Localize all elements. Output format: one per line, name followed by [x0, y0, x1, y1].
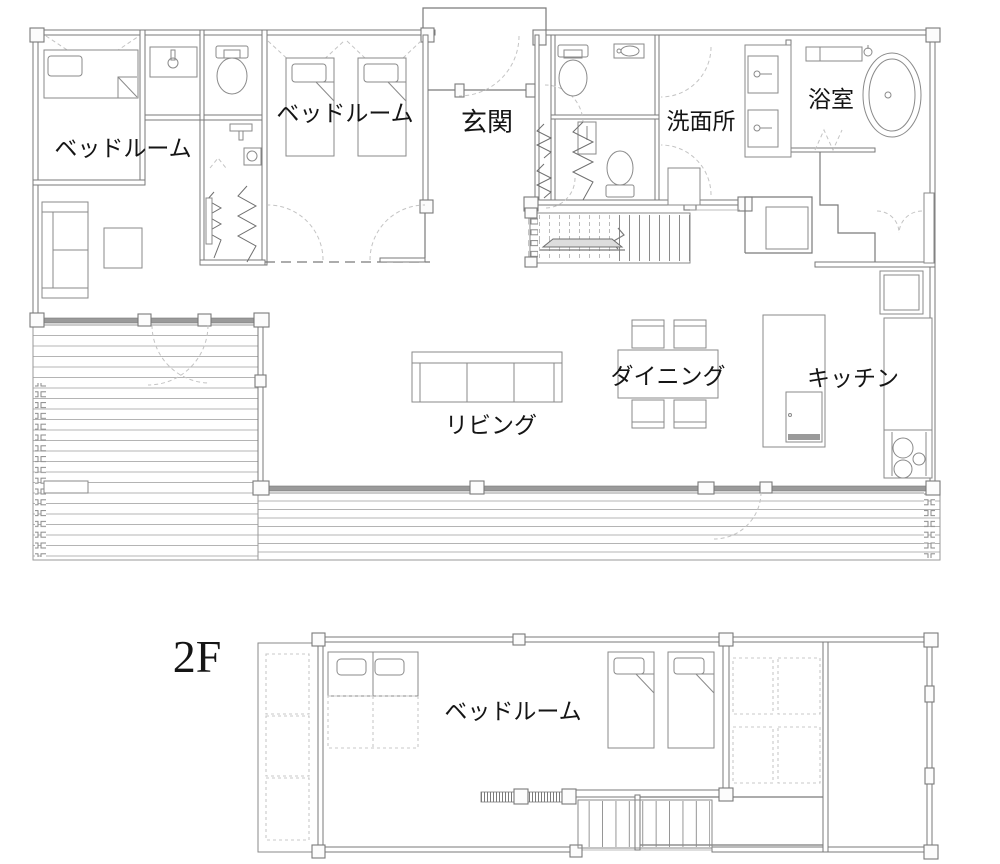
stair-landing: [543, 239, 622, 247]
room-label-living: リビング: [445, 413, 537, 438]
room-label-entrance: 玄関: [461, 108, 513, 137]
deck-post-column-right: [924, 488, 935, 558]
floor-2f-plan: 2F ベッドルーム: [173, 631, 938, 859]
kitchen-counter-icon: [884, 318, 932, 478]
stove-icon: [884, 430, 932, 478]
stair-railing: [481, 792, 514, 802]
sofa-icon: [412, 352, 562, 402]
storage-room: [745, 197, 812, 253]
stairs-2f-icon: [481, 789, 712, 848]
floor-label-2f: 2F: [173, 631, 222, 682]
stair-railing: [528, 792, 562, 802]
entrance-door-swing: [459, 36, 519, 96]
toilet-icon: [558, 45, 588, 96]
chair-icon: [674, 400, 706, 428]
toilet-icon: [578, 122, 634, 197]
deck-post-column-left: [35, 383, 46, 557]
bed-icon: [44, 50, 138, 98]
bed-icon: [668, 652, 714, 748]
chair-icon: [632, 320, 664, 348]
lounge-sofa-icon: [42, 202, 142, 298]
double-door-swing: [899, 211, 922, 233]
double-bed-icon: [328, 652, 418, 748]
refrigerator-icon: [880, 271, 923, 314]
room-label-bathroom: 浴室: [808, 87, 854, 112]
closet-door-swing: [370, 205, 425, 260]
floor-1f-plan: ベッドルーム ベッドルーム 玄関 洗面所 浴室 ダイニング リビング キッチン: [30, 8, 940, 560]
laundry-cabinet: [668, 168, 700, 205]
balcony-2f: [258, 643, 318, 852]
washroom-door-swing: [661, 47, 711, 97]
chair-icon: [632, 400, 664, 428]
folding-door: [210, 158, 226, 168]
room-label-dining: ダイニング: [611, 364, 726, 389]
bath-step-walls: [820, 152, 875, 262]
deck-bench: [44, 481, 88, 493]
double-door-swing: [877, 211, 899, 233]
wall-sink-icon: [230, 124, 261, 165]
entrance-porch: [423, 8, 546, 30]
room-label-washroom: 洗面所: [667, 109, 736, 134]
closet-door-swing: [268, 205, 323, 260]
room-label-bedroom-2f: ベッドルーム: [444, 699, 581, 724]
floor-plan-page: ベッドルーム ベッドルーム 玄関 洗面所 浴室 ダイニング リビング キッチン: [0, 0, 1000, 864]
wall-basin-icon: [614, 44, 644, 58]
bath-folding-door: [815, 130, 842, 150]
void-dashed-squares: [733, 658, 820, 783]
bed-icon: [608, 652, 654, 748]
room-label-kitchen: キッチン: [807, 366, 899, 391]
washbasin-icon: [150, 47, 197, 77]
window-band-south: [256, 486, 940, 491]
room-label-bedroom-center: ベッドルーム: [276, 101, 413, 126]
floor-plan-svg: ベッドルーム ベッドルーム 玄関 洗面所 浴室 ダイニング リビング キッチン: [0, 0, 1000, 864]
side-table-icon: [104, 228, 142, 268]
toilet-icon: [216, 46, 248, 94]
room-label-bedroom-left: ベッドルーム: [54, 136, 191, 161]
chair-icon: [674, 320, 706, 348]
stairs-1f-icon: [525, 208, 690, 267]
wall-cabinet: [924, 193, 934, 263]
